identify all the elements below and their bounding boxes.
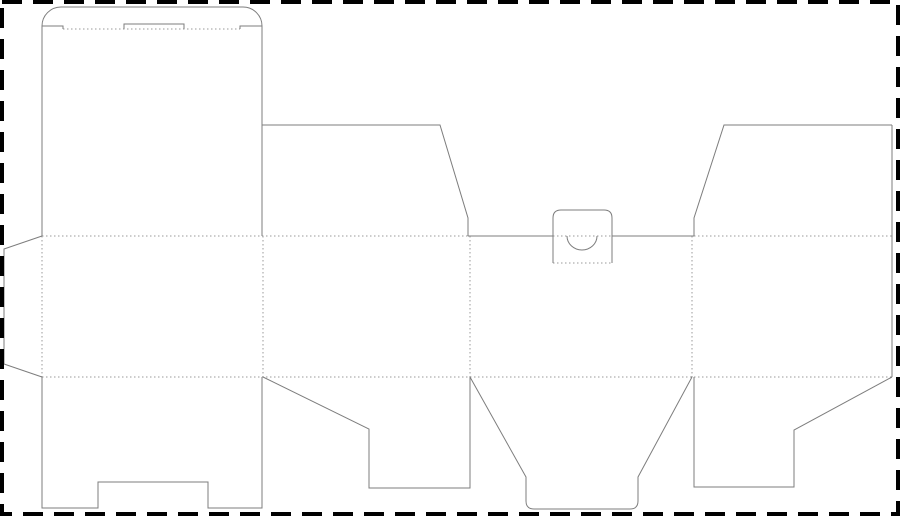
- dieline-canvas: [0, 0, 900, 516]
- dieline-drawing: [0, 0, 900, 516]
- sheet-background: [0, 0, 900, 516]
